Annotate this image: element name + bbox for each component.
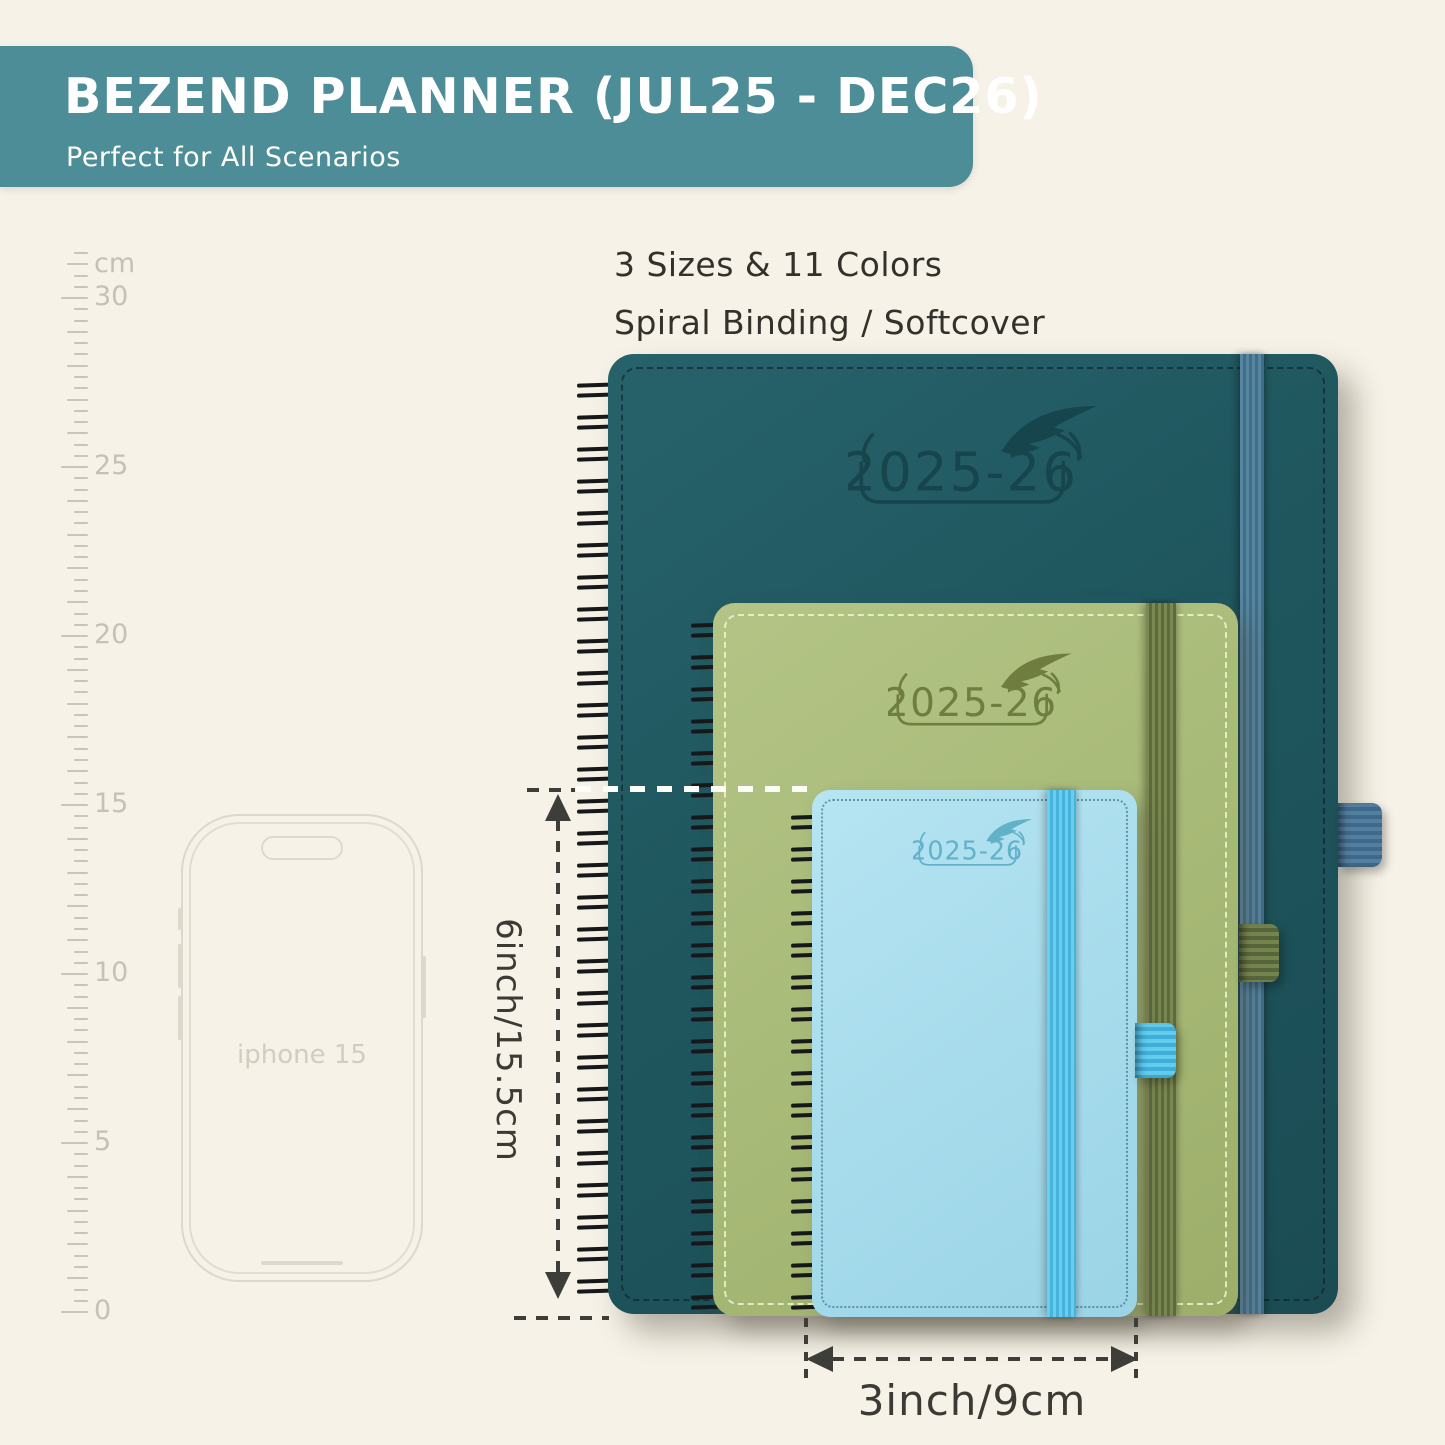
ruler-tick — [74, 680, 88, 682]
ruler-tick — [74, 1131, 88, 1133]
ruler-tick — [74, 725, 88, 727]
arrow-left-icon — [806, 1346, 833, 1372]
ruler-tick — [61, 635, 88, 637]
planner-medium-pen-loop — [1239, 924, 1279, 982]
ruler-tick — [74, 444, 88, 446]
ruler-tick — [74, 1153, 88, 1155]
ruler-tick — [74, 353, 88, 355]
arrow-down-icon — [545, 1272, 571, 1299]
ruler-tick — [74, 320, 88, 322]
ruler-tick — [67, 1074, 88, 1076]
phone-mute-switch — [178, 908, 182, 930]
height-dimension-line — [556, 820, 560, 1272]
ruler-tick — [74, 1018, 88, 1020]
ruler-tick — [74, 1289, 88, 1291]
ruler-tick — [74, 793, 88, 795]
ruler-label-10: 10 — [94, 957, 128, 988]
height-dimension-top-tick — [527, 788, 575, 792]
ruler-tick — [74, 815, 88, 817]
ruler-tick — [67, 1277, 88, 1279]
ruler-tick — [67, 770, 88, 772]
phone-volume-up-button — [178, 944, 182, 988]
ruler-tick — [74, 624, 88, 626]
ruler-tick — [74, 511, 88, 513]
ruler-tick — [67, 1041, 88, 1043]
ruler-tick — [74, 387, 88, 389]
ruler-tick — [74, 860, 88, 862]
ruler-tick — [67, 399, 88, 401]
ruler-tick — [74, 286, 88, 288]
ruler-tick — [74, 1221, 88, 1223]
year-label: 2025-26 — [848, 442, 1078, 504]
planner-small-stitching — [821, 799, 1128, 1308]
ruler-tick — [67, 1210, 88, 1212]
ruler-tick — [74, 1052, 88, 1054]
ruler-tick — [67, 567, 88, 569]
product-title: BEZEND PLANNER (JUL25 - DEC26) — [64, 68, 1043, 125]
ruler-tick — [74, 489, 88, 491]
ruler-tick — [67, 601, 88, 603]
ruler-tick — [61, 973, 88, 975]
height-dimension-bottom-tick — [514, 1316, 609, 1320]
ruler-tick — [67, 703, 88, 705]
ruler-tick — [74, 590, 88, 592]
ruler-tick — [67, 905, 88, 907]
phone-label: iphone 15 — [183, 1040, 421, 1070]
ruler-tick — [67, 736, 88, 738]
ruler-tick — [74, 1232, 88, 1234]
ruler-tick — [74, 1063, 88, 1065]
ruler-label-30: 30 — [94, 281, 128, 312]
ruler-tick — [74, 984, 88, 986]
ruler-tick — [74, 917, 88, 919]
intro-line-sizes: 3 Sizes & 11 Colors — [614, 236, 1045, 294]
ruler-tick — [67, 1176, 88, 1178]
ruler-label-5: 5 — [94, 1126, 111, 1157]
ruler-tick — [74, 962, 88, 964]
ruler-tick — [74, 1266, 88, 1268]
ruler-tick — [74, 275, 88, 277]
phone-home-indicator — [261, 1261, 343, 1265]
ruler-tick — [74, 827, 88, 829]
phone-volume-down-button — [178, 996, 182, 1040]
ruler-tick — [67, 534, 88, 536]
width-dimension-label: 3inch/9cm — [812, 1376, 1132, 1425]
planner-large-pen-loop — [1338, 803, 1382, 867]
ruler-tick — [67, 500, 88, 502]
phone-power-button — [422, 956, 426, 1018]
ruler-tick — [74, 421, 88, 423]
product-subtitle: Perfect for All Scenarios — [66, 142, 401, 173]
ruler-tick — [67, 838, 88, 840]
ruler-tick — [61, 297, 88, 299]
ruler-tick — [67, 432, 88, 434]
ruler-tick — [74, 545, 88, 547]
ruler-tick — [74, 455, 88, 457]
phone-dynamic-island — [261, 836, 343, 860]
ruler-tick — [74, 883, 88, 885]
ruler-label-15: 15 — [94, 788, 128, 819]
ruler-tick — [74, 342, 88, 344]
ruler-tick — [74, 1165, 88, 1167]
planner-small-logo: 2025-26 — [913, 818, 1035, 873]
height-dimension-top-tick-overlay — [576, 786, 812, 792]
ruler-tick — [74, 646, 88, 648]
year-label: 2025-26 — [913, 835, 1023, 865]
ruler-tick — [74, 1187, 88, 1189]
ruler-tick — [74, 308, 88, 310]
ruler-tick — [74, 759, 88, 761]
ruler-tick — [74, 410, 88, 412]
ruler-tick — [61, 804, 88, 806]
ruler-tick — [74, 894, 88, 896]
product-infographic: BEZEND PLANNER (JUL25 - DEC26) Perfect f… — [0, 0, 1445, 1445]
planner-small-pen-loop — [1135, 1023, 1176, 1078]
ruler-tick — [74, 376, 88, 378]
ruler-tick — [67, 1007, 88, 1009]
ruler-tick — [61, 1142, 88, 1144]
phone-outline: iphone 15 — [181, 814, 423, 1282]
ruler-unit-label: cm — [94, 248, 135, 279]
ruler-tick — [74, 658, 88, 660]
planner-small-elastic-band — [1047, 790, 1076, 1317]
ruler-tick — [74, 613, 88, 615]
ruler-tick — [74, 748, 88, 750]
year-label: 2025-26 — [888, 681, 1058, 726]
ruler-tick — [67, 669, 88, 671]
ruler-tick — [67, 872, 88, 874]
ruler-tick — [74, 691, 88, 693]
header-banner: BEZEND PLANNER (JUL25 - DEC26) Perfect f… — [0, 46, 973, 187]
planner-large-elastic-band — [1240, 354, 1264, 1314]
ruler-tick — [61, 1311, 88, 1313]
ruler-tick — [74, 252, 88, 254]
ruler-tick — [74, 951, 88, 953]
ruler-tick — [67, 263, 88, 265]
intro-line-binding: Spiral Binding / Softcover — [614, 294, 1045, 352]
ruler-tick — [74, 1255, 88, 1257]
intro-text: 3 Sizes & 11 Colors Spiral Binding / Sof… — [614, 236, 1045, 352]
ruler-tick — [67, 939, 88, 941]
ruler-tick — [74, 1086, 88, 1088]
planner-large-logo: 2025-26 — [848, 404, 1103, 518]
ruler-tick — [74, 1120, 88, 1122]
planner-medium-elastic-band — [1146, 603, 1176, 1316]
width-dimension-left-tick — [804, 1318, 808, 1380]
width-dimension-line — [832, 1357, 1114, 1361]
ruler-tick — [74, 1300, 88, 1302]
planner-medium-logo: 2025-26 — [888, 652, 1076, 736]
width-dimension-right-tick — [1134, 1318, 1138, 1380]
ruler-tick — [67, 331, 88, 333]
ruler-tick — [74, 477, 88, 479]
ruler-tick — [74, 1198, 88, 1200]
ruler-tick — [74, 714, 88, 716]
ruler-tick — [67, 1108, 88, 1110]
arrow-up-icon — [545, 794, 571, 821]
ruler-tick — [74, 1029, 88, 1031]
ruler-tick — [74, 522, 88, 524]
ruler-tick — [74, 928, 88, 930]
ruler-tick — [67, 365, 88, 367]
ruler-tick — [74, 1097, 88, 1099]
ruler-tick — [67, 1243, 88, 1245]
ruler-label-25: 25 — [94, 450, 128, 481]
ruler-tick — [74, 556, 88, 558]
ruler-tick — [74, 782, 88, 784]
height-dimension-label: 6inch/15.5cm — [488, 870, 528, 1210]
ruler-tick — [61, 466, 88, 468]
ruler-tick — [74, 996, 88, 998]
ruler-tick — [74, 579, 88, 581]
ruler-tick — [74, 849, 88, 851]
ruler-label-20: 20 — [94, 619, 128, 650]
ruler-label-0: 0 — [94, 1295, 111, 1326]
